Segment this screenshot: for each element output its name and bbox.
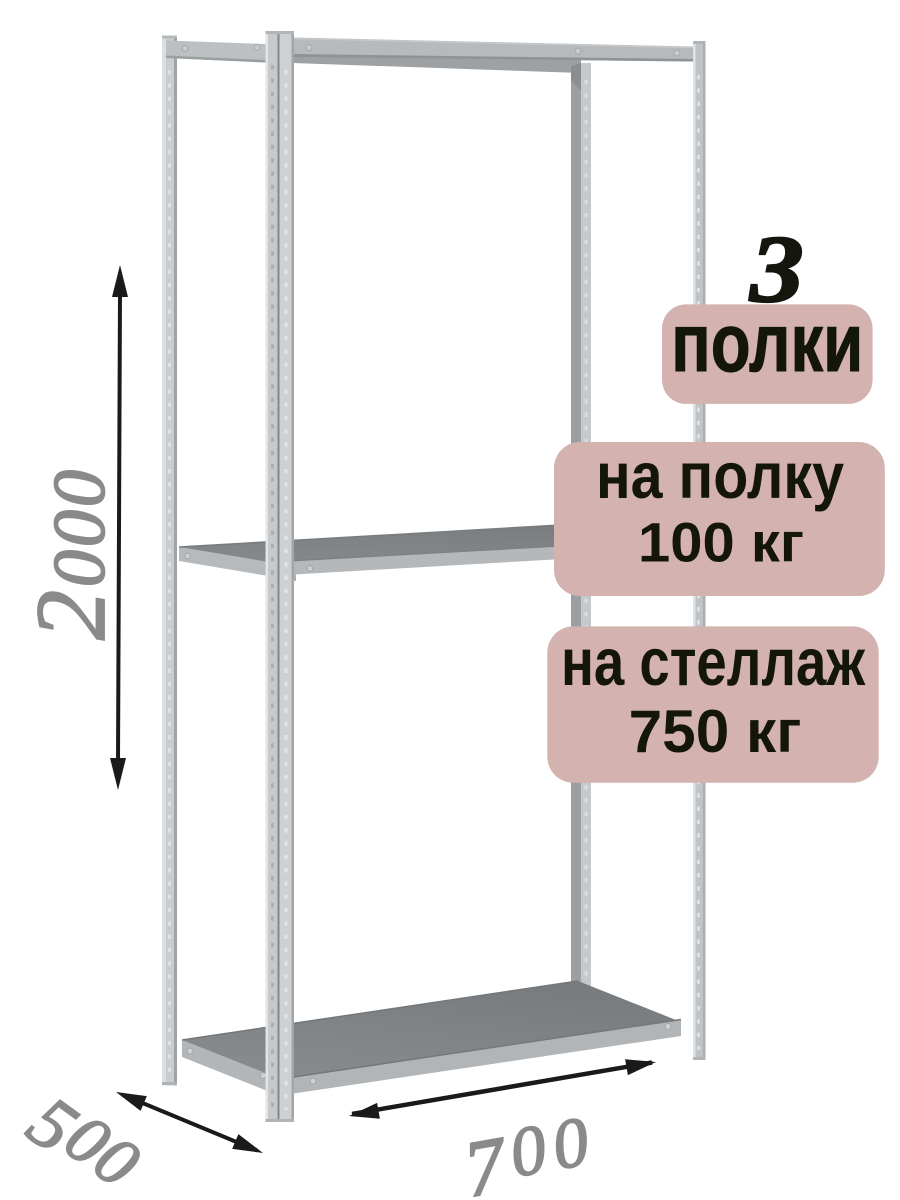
svg-text:полки: полки xyxy=(671,296,863,389)
svg-text:100 кг: 100 кг xyxy=(638,512,804,574)
svg-text:750 кг: 750 кг xyxy=(629,698,802,765)
svg-text:на стеллаж: на стеллаж xyxy=(561,625,866,699)
svg-text:на полку: на полку xyxy=(596,440,844,513)
